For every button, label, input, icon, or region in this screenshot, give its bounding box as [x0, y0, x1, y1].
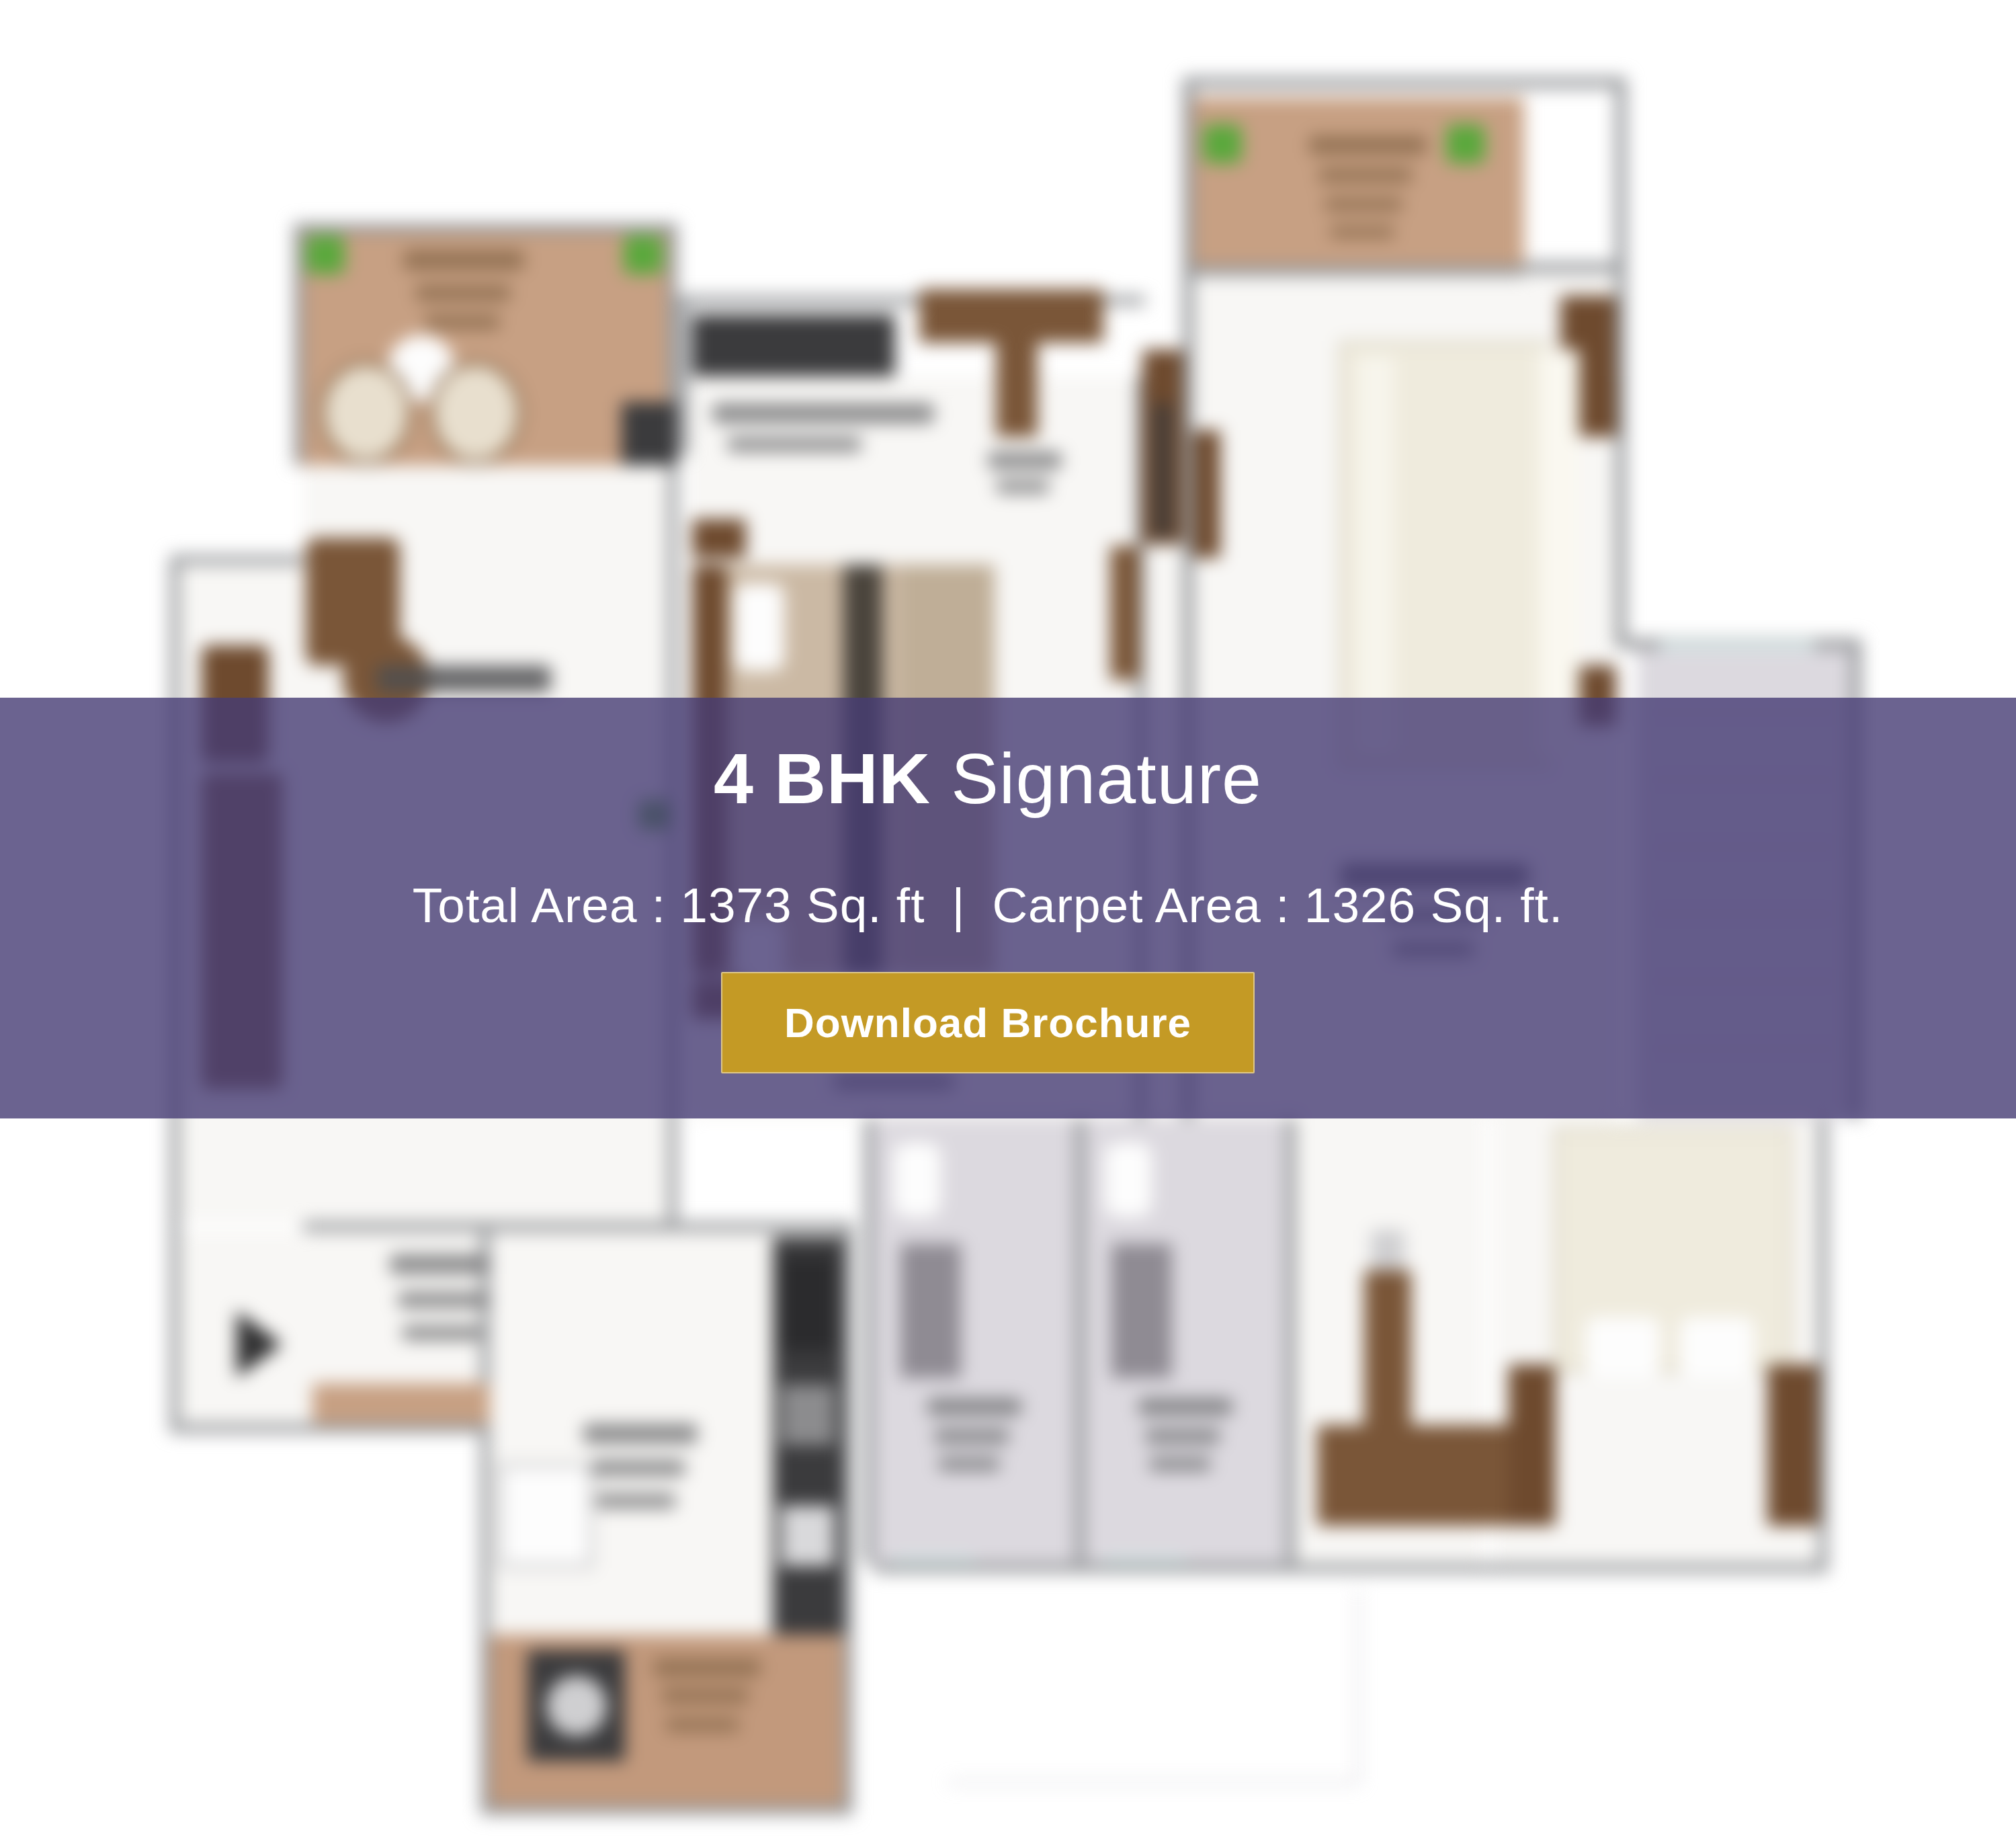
separator-pipe: |	[952, 877, 965, 933]
balcony	[294, 223, 677, 465]
utility-balcony	[490, 1635, 843, 1805]
plan-variant-label: Signature	[951, 739, 1262, 818]
carpet-area-text: Carpet Area : 1326 Sq. ft.	[992, 877, 1563, 933]
toilet-1	[864, 1118, 1085, 1565]
toilet-2	[1085, 1118, 1296, 1565]
info-overlay-band: 4 BHK Signature Total Area : 1373 Sq. ft…	[0, 698, 2016, 1118]
total-area-text: Total Area : 1373 Sq. ft	[413, 877, 925, 933]
download-brochure-button[interactable]: Download Brochure	[721, 972, 1255, 1073]
master-balcony	[1183, 77, 1626, 276]
page-title: 4 BHK Signature	[714, 739, 1262, 818]
floor-plan-page: 4 BHK Signature Total Area : 1373 Sq. ft…	[0, 0, 2016, 1839]
area-summary: Total Area : 1373 Sq. ft | Carpet Area :…	[413, 877, 1563, 933]
plan-type-label: 4 BHK	[714, 739, 931, 818]
overlay-content: 4 BHK Signature Total Area : 1373 Sq. ft…	[413, 739, 1563, 1073]
